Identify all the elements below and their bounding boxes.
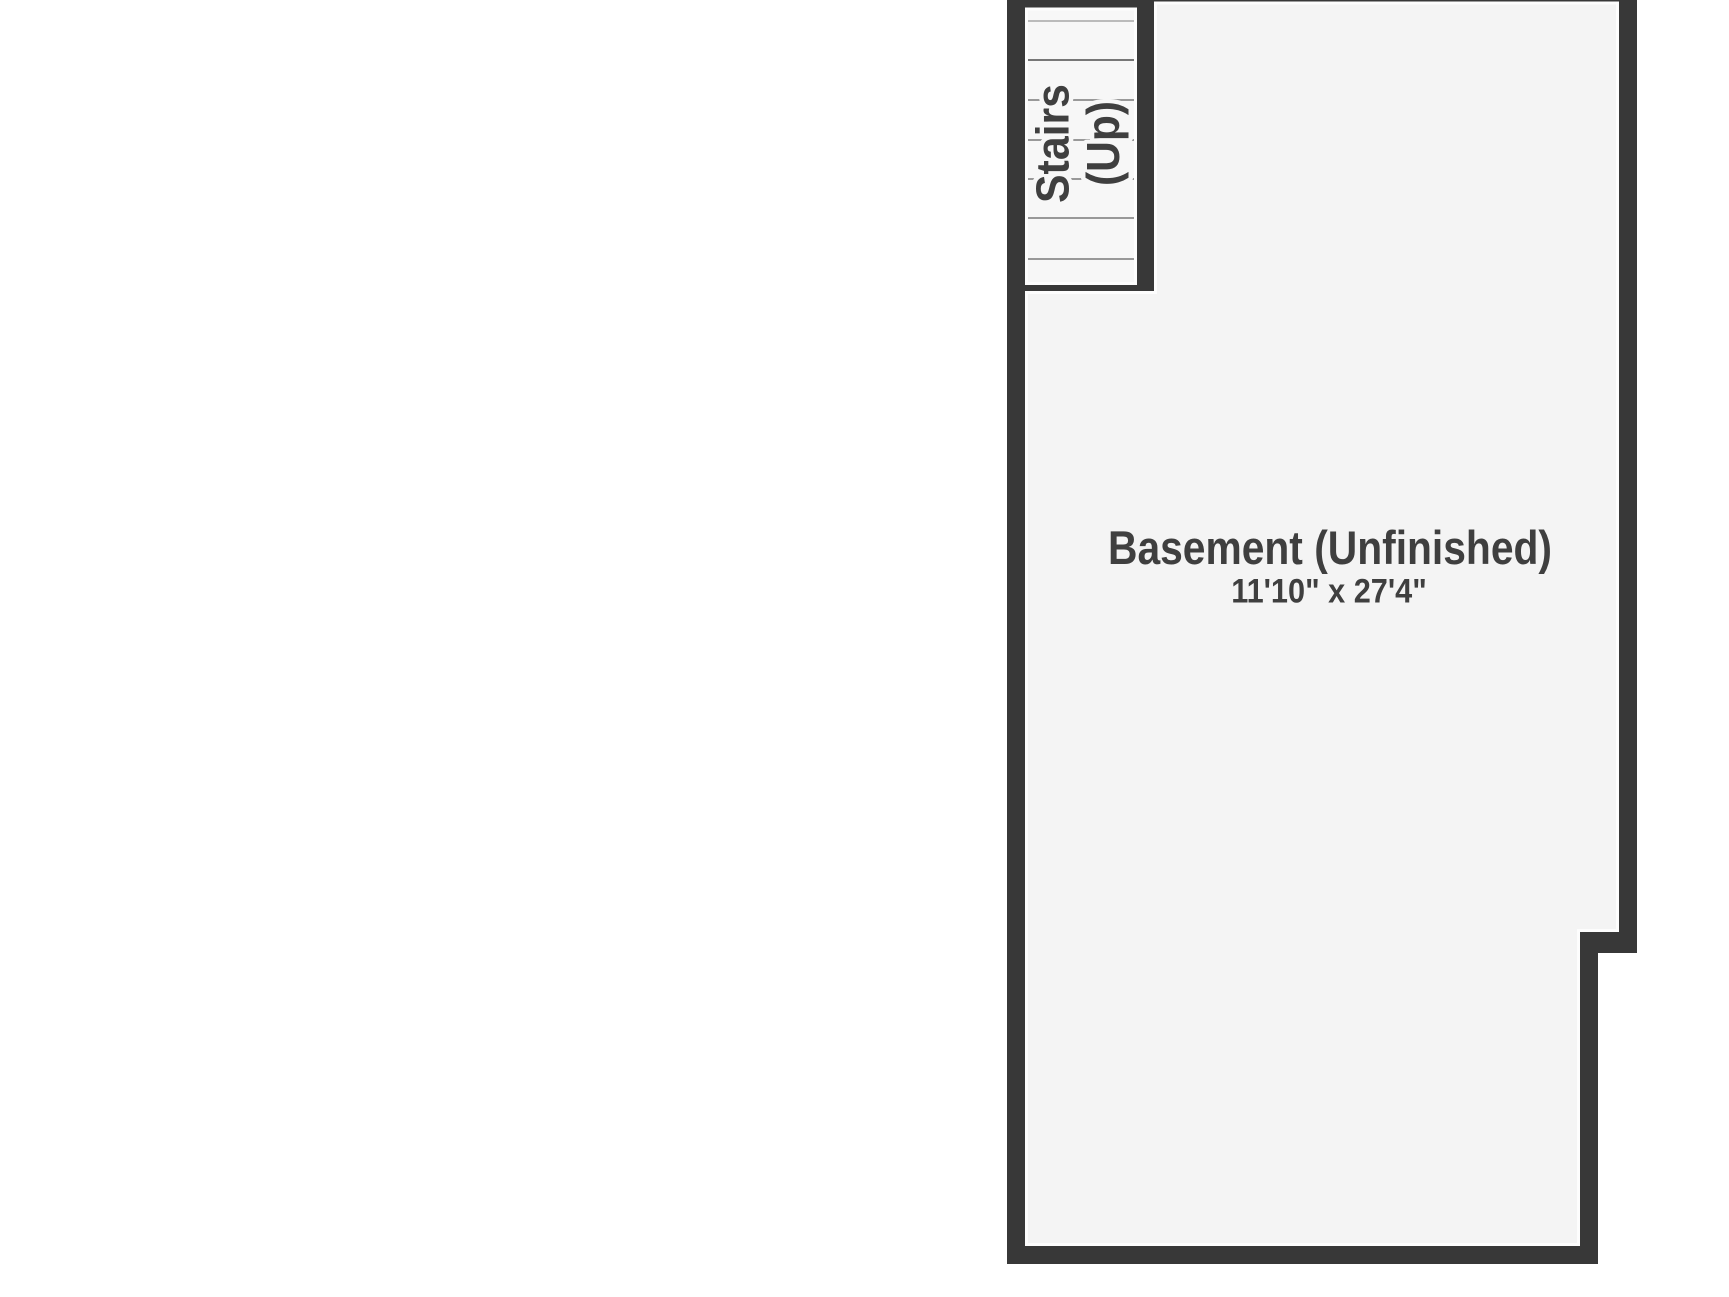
svg-text:Stairs: Stairs — [1027, 84, 1079, 203]
svg-text:Basement (Unfinished): Basement (Unfinished) — [1108, 522, 1552, 575]
svg-text:11'10" x 27'4": 11'10" x 27'4" — [1231, 573, 1427, 611]
svg-text:(Up): (Up) — [1077, 101, 1129, 186]
